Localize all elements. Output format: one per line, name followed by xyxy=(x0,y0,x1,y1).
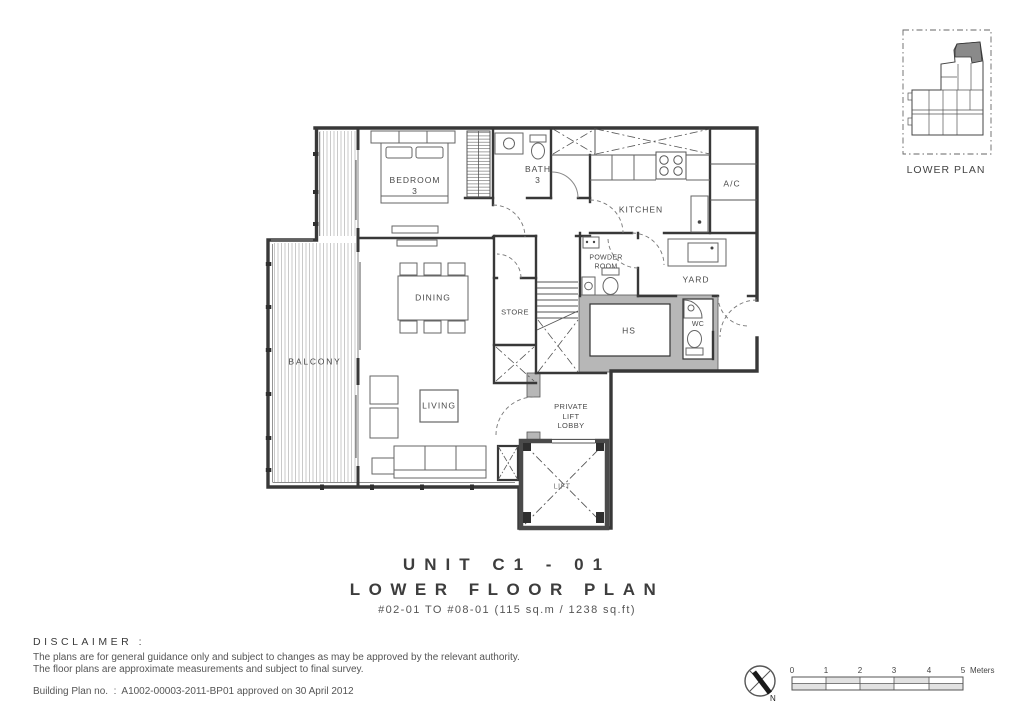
room-label-line: HS xyxy=(622,326,636,337)
room-label-line: PRIVATE xyxy=(554,402,588,412)
room-label-balcony: BALCONY xyxy=(288,357,341,368)
room-label-powder-room: POWDER ROOM xyxy=(589,255,622,272)
kitchen-counter xyxy=(590,155,710,232)
north-compass-icon xyxy=(745,666,775,696)
room-label-line: DINING xyxy=(415,293,451,304)
room-label-line: LOBBY xyxy=(554,421,588,431)
room-label-bedroom-3: BEDROOM 3 xyxy=(390,175,441,197)
scale-tick-1: 1 xyxy=(824,666,828,675)
room-label-hs: HS xyxy=(622,326,636,337)
room-label-store: STORE xyxy=(501,307,529,317)
room-label-wc: WC xyxy=(692,321,704,330)
sofa-set xyxy=(370,376,486,478)
room-label-line: BALCONY xyxy=(288,357,341,368)
unit-title: UNIT C1 - 01 xyxy=(403,555,611,575)
room-label-dining: DINING xyxy=(415,293,451,304)
room-label-line: YARD xyxy=(683,275,710,286)
yard-sink xyxy=(668,239,726,266)
room-label-bath-3: BATH 3 xyxy=(525,164,551,186)
stairs xyxy=(537,282,578,330)
disclaimer-line-1: The plans are for general guidance only … xyxy=(33,652,520,663)
dining-table xyxy=(397,240,468,333)
room-label-line: A/C xyxy=(723,179,740,190)
room-label-line: WC xyxy=(692,321,704,330)
key-plan-label: LOWER PLAN xyxy=(907,164,986,176)
scale-tick-0: 0 xyxy=(790,666,794,675)
room-label-kitchen: KITCHEN xyxy=(619,205,663,216)
stove xyxy=(656,152,686,179)
key-plan xyxy=(903,30,991,154)
floor-title: LOWER FLOOR PLAN xyxy=(350,580,664,600)
scale-tick-2: 2 xyxy=(858,666,862,675)
room-label-line: LIFT xyxy=(553,481,570,491)
wardrobe xyxy=(467,131,490,197)
room-label-line: BATH xyxy=(525,164,551,175)
void-strip-border xyxy=(551,128,710,155)
room-label-yard: YARD xyxy=(683,275,710,286)
room-label-line: 3 xyxy=(525,175,551,186)
room-label-ac: A/C xyxy=(723,179,740,190)
room-label-living: LIVING xyxy=(422,401,456,412)
balcony-glass-wall xyxy=(356,128,360,487)
room-label-line: BEDROOM xyxy=(390,175,441,186)
scale-tick-5: 5 xyxy=(961,666,965,675)
disclaimer-heading: DISCLAIMER : xyxy=(33,636,145,648)
room-label-line: STORE xyxy=(501,307,529,317)
scale-tick-3: 3 xyxy=(892,666,896,675)
floor-plan-page: BEDROOM 3 BATH 3 KITCHEN A/C DINING STOR… xyxy=(0,0,1024,724)
room-label-line: LIVING xyxy=(422,401,456,412)
room-label-line: POWDER xyxy=(589,255,622,264)
balcony-decking xyxy=(272,131,356,483)
scale-tick-4: 4 xyxy=(927,666,931,675)
scale-bar xyxy=(792,677,963,690)
duct-shaft xyxy=(498,446,518,480)
room-label-line: ROOM xyxy=(589,263,622,272)
room-label-line: 3 xyxy=(390,186,441,197)
unit-detail: #02-01 TO #08-01 (115 sq.m / 1238 sq.ft) xyxy=(378,604,636,616)
scale-unit-label: Meters xyxy=(970,666,994,675)
north-label: N xyxy=(770,694,776,703)
room-label-line: KITCHEN xyxy=(619,205,663,216)
disclaimer-line-2: The floor plans are approximate measurem… xyxy=(33,664,364,675)
building-plan-number: Building Plan no. : A1002-00003-2011-BP0… xyxy=(33,686,354,697)
room-label-lift: LIFT xyxy=(553,481,570,491)
room-label-private-lift-lobby: PRIVATE LIFT LOBBY xyxy=(554,402,588,431)
room-label-line: LIFT xyxy=(554,411,588,421)
